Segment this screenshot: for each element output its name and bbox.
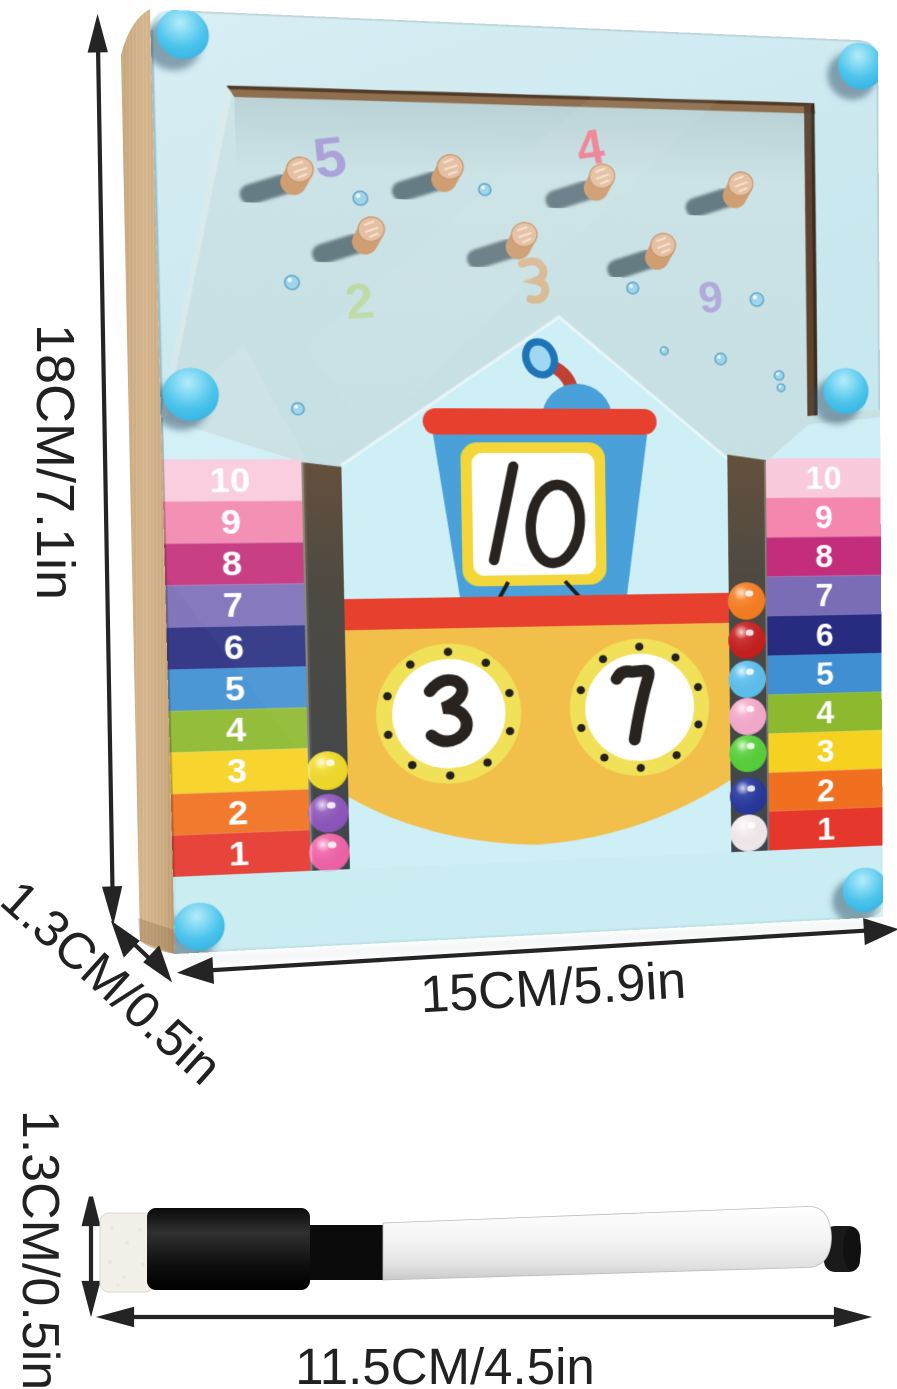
svg-text:1.3CM/0.5in: 1.3CM/0.5in [11,1110,69,1389]
svg-text:18CM/7.1in: 18CM/7.1in [25,324,85,600]
svg-text:15CM/5.9in: 15CM/5.9in [419,952,688,1025]
svg-text:11.5CM/4.5in: 11.5CM/4.5in [295,1338,595,1389]
